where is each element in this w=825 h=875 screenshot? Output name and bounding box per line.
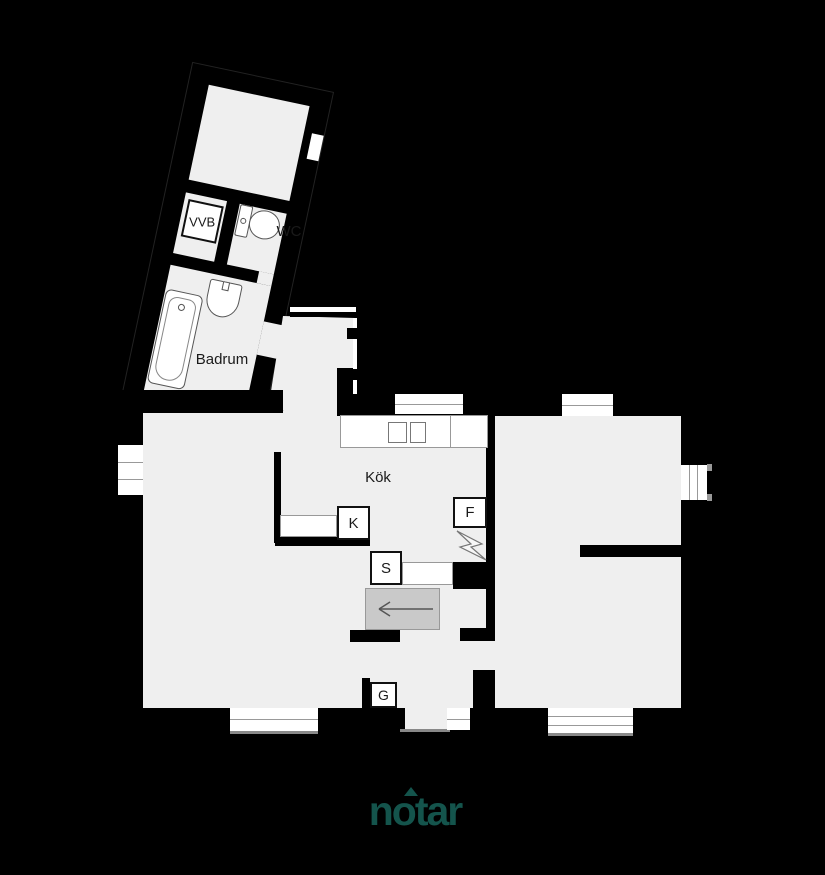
stove-icon	[388, 422, 407, 443]
wall	[350, 630, 400, 642]
wall	[460, 628, 495, 641]
wall	[347, 328, 357, 339]
window-divider	[697, 465, 698, 500]
wall	[290, 312, 356, 317]
window-sill	[707, 464, 712, 471]
fridge-label: K	[348, 515, 358, 532]
kitchen-counter	[280, 515, 337, 537]
vvb-label: VVB	[189, 214, 215, 229]
window-divider	[395, 404, 463, 405]
wall	[118, 390, 143, 731]
logo-peak-icon	[404, 787, 418, 796]
freezer-label: F	[465, 504, 474, 521]
stove-icon	[410, 422, 426, 443]
stove-unit: S	[370, 551, 402, 585]
window-divider	[548, 725, 633, 726]
freezer-unit: F	[453, 497, 487, 528]
room-top	[189, 85, 310, 201]
wall	[486, 416, 495, 640]
entrance-opening	[405, 708, 447, 729]
stove-label: S	[381, 560, 391, 577]
window-sill	[548, 733, 633, 736]
kok-label: Kök	[338, 469, 418, 486]
wall	[453, 562, 487, 589]
window-divider	[230, 719, 318, 720]
wardrobe-unit: G	[370, 682, 397, 708]
door-divider	[447, 719, 470, 720]
wall	[362, 678, 370, 708]
wardrobe-label: G	[378, 687, 389, 703]
window-sill	[230, 731, 318, 734]
window	[118, 445, 143, 495]
wc-label: WC	[264, 223, 314, 240]
wall	[347, 369, 357, 380]
electric-zigzag-icon	[453, 528, 487, 562]
badrum-label: Badrum	[172, 351, 272, 368]
main-floor	[143, 411, 681, 708]
wall	[681, 391, 706, 731]
window-divider	[562, 405, 613, 406]
counter-divider	[450, 415, 451, 448]
kitchen-counter	[402, 562, 453, 585]
window	[681, 465, 707, 500]
stairs-arrow-icon	[365, 588, 440, 630]
wall	[580, 545, 681, 557]
wall	[473, 670, 495, 731]
window-divider	[118, 462, 143, 463]
wall	[357, 318, 360, 394]
window-divider	[689, 465, 690, 500]
fridge-unit: K	[337, 506, 370, 540]
window-divider	[118, 479, 143, 480]
window-divider	[548, 716, 633, 717]
window-sill	[707, 494, 712, 501]
threshold	[400, 729, 450, 732]
window	[548, 708, 633, 733]
floorplan-canvas: VVB	[0, 0, 825, 875]
